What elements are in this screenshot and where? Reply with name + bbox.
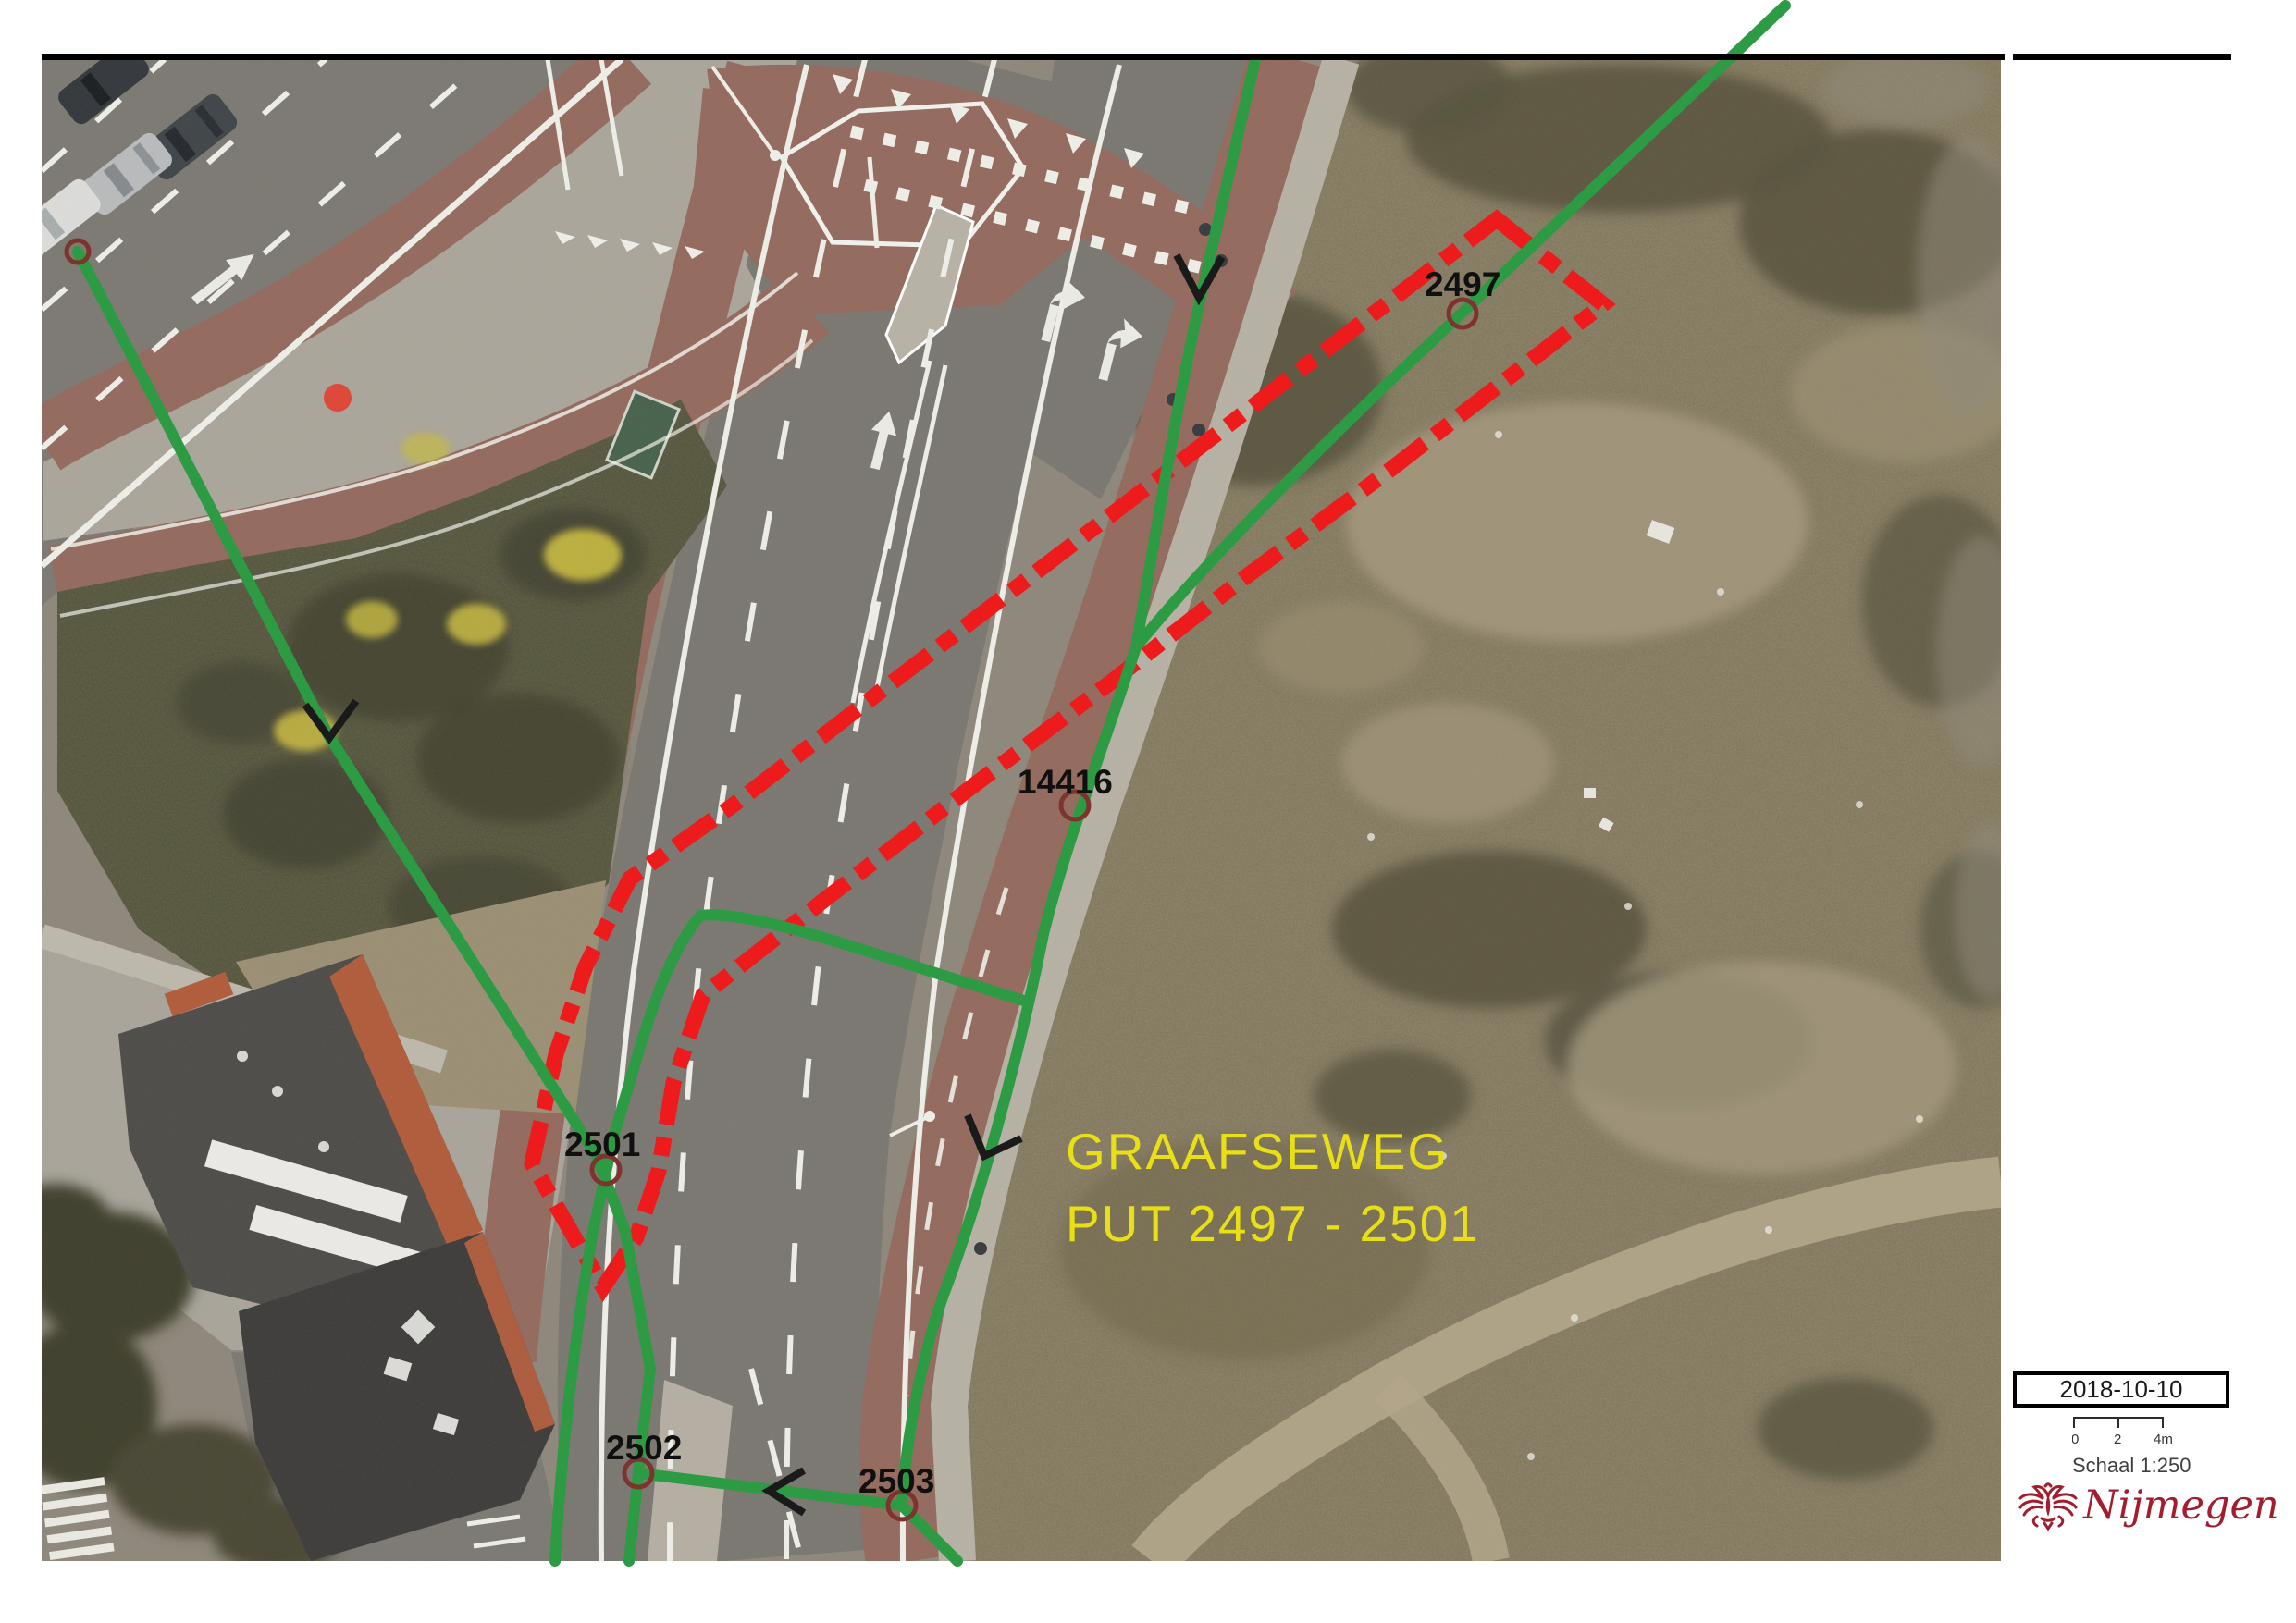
frame-line-margin — [2013, 54, 2231, 60]
date-box: 2018-10-10 — [2013, 1371, 2229, 1408]
municipality-logo: Nijmegen — [2015, 1466, 2237, 1549]
scale-tick-4: 4m — [2154, 1432, 2173, 1447]
photo-grain — [42, 59, 2001, 1561]
frame-line-map — [42, 54, 2005, 60]
aerial-photo-map: 2497 14416 2501 2502 2503 GRAAFSEWEG PUT… — [0, 0, 2296, 1623]
scale-tick-2: 2 — [2114, 1432, 2121, 1447]
scale-bar: 0 2 4m — [2072, 1413, 2183, 1454]
annotation-street: GRAAFSEWEG — [1066, 1123, 1449, 1180]
annotation-put-range: PUT 2497 - 2501 — [1066, 1195, 1480, 1252]
put-label-2497: 2497 — [1425, 265, 1500, 303]
nijmegen-eagle-icon — [2015, 1466, 2081, 1549]
scale-tick-0: 0 — [2072, 1432, 2079, 1447]
put-label-14416: 14416 — [1018, 763, 1113, 801]
put-label-2502: 2502 — [606, 1429, 682, 1467]
logo-text: Nijmegen — [2083, 1482, 2279, 1529]
map-sheet: 2497 14416 2501 2502 2503 GRAAFSEWEG PUT… — [0, 0, 2296, 1623]
date-text: 2018-10-10 — [2060, 1375, 2183, 1404]
put-label-2503: 2503 — [858, 1462, 934, 1500]
put-label-2501: 2501 — [564, 1125, 640, 1163]
